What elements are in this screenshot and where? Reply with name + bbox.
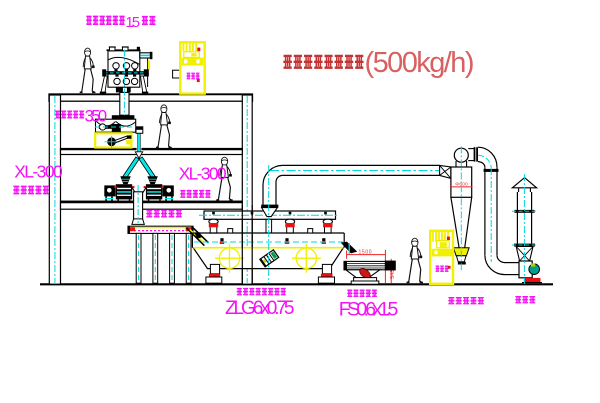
svg-text:1500: 1500 <box>359 250 372 256</box>
svg-text:XL-300: XL-300 <box>14 162 63 182</box>
svg-text:ZLG6x0.75: ZLG6x0.75 <box>225 298 295 319</box>
svg-text:(500kg/h): (500kg/h) <box>365 47 475 79</box>
svg-text:350: 350 <box>85 108 108 126</box>
svg-text:1.5: 1.5 <box>126 15 141 31</box>
svg-text:FS0.6x1.5: FS0.6x1.5 <box>339 298 399 320</box>
svg-text:XL-300: XL-300 <box>179 164 227 184</box>
svg-text:548: 548 <box>390 270 396 279</box>
